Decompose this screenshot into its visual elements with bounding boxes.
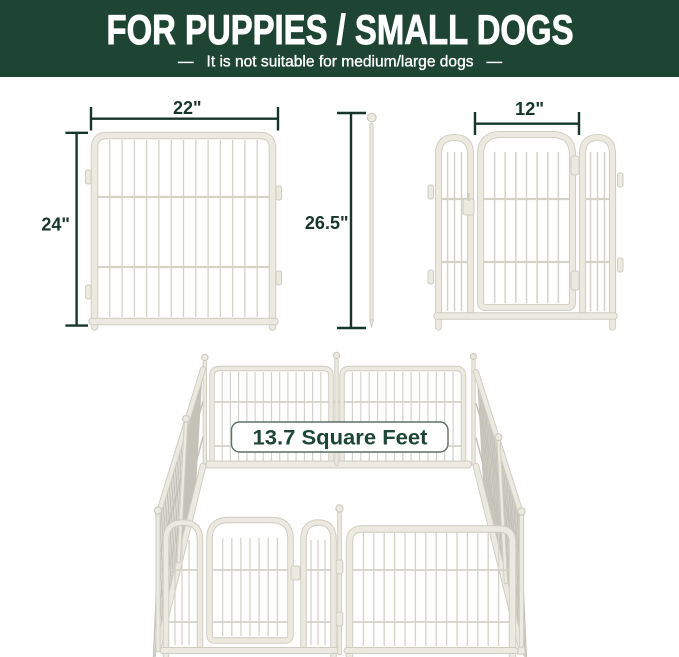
svg-text:24": 24" xyxy=(41,214,70,234)
svg-text:— It is not suitable for med: — It is not suitable for medium/large do… xyxy=(178,54,502,71)
svg-text:13.7 Square Feet: 13.7 Square Feet xyxy=(253,426,428,450)
svg-text:12": 12" xyxy=(515,99,544,119)
svg-text:FOR PUPPIES / SMALL DOGS: FOR PUPPIES / SMALL DOGS xyxy=(107,6,574,53)
svg-text:26.5": 26.5" xyxy=(305,213,349,233)
svg-text:22": 22" xyxy=(173,98,202,118)
